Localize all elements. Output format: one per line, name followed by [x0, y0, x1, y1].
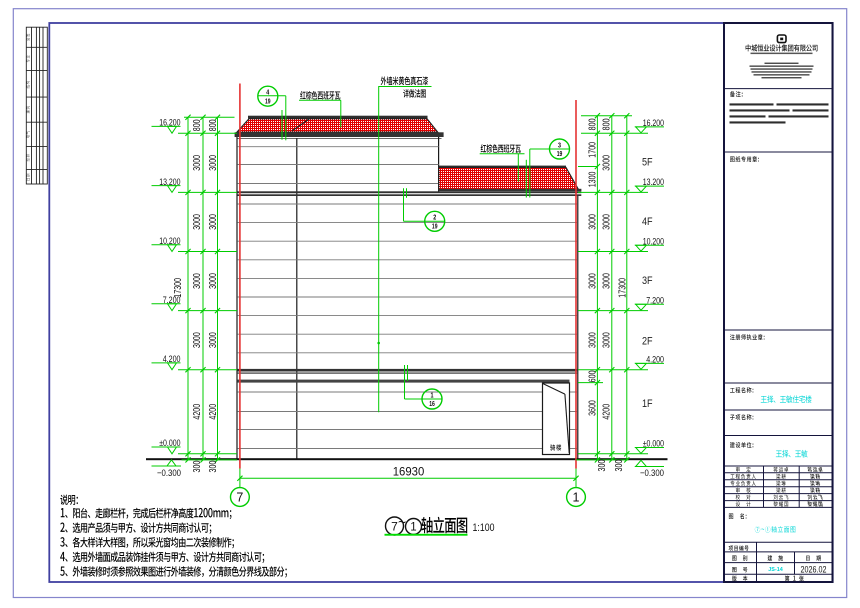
svg-text:300: 300: [614, 459, 625, 471]
svg-text:1: 1: [431, 390, 434, 399]
svg-text:300: 300: [597, 459, 608, 471]
svg-text:10.200: 10.200: [159, 236, 180, 246]
svg-text:4200: 4200: [208, 404, 219, 420]
svg-text:3000: 3000: [192, 273, 203, 289]
svg-text:800: 800: [208, 119, 219, 131]
svg-text:±0.000: ±0.000: [643, 439, 664, 449]
svg-text:1700: 1700: [588, 142, 599, 158]
svg-text:800: 800: [192, 119, 203, 131]
svg-text:2026.02: 2026.02: [801, 565, 827, 575]
svg-text:−0.300: −0.300: [157, 468, 181, 478]
svg-text:800: 800: [602, 118, 613, 130]
svg-text:4F: 4F: [642, 216, 653, 228]
svg-text:JS-14: JS-14: [768, 567, 783, 573]
svg-text:5F: 5F: [642, 157, 653, 169]
svg-text:3600: 3600: [588, 400, 599, 416]
svg-text:4.200: 4.200: [646, 355, 664, 365]
svg-text:3000: 3000: [192, 332, 203, 348]
svg-text:3000: 3000: [602, 273, 613, 289]
svg-text:3000: 3000: [602, 155, 613, 171]
svg-text:1F: 1F: [642, 398, 653, 410]
svg-text:1: 1: [573, 491, 580, 505]
svg-text:16.200: 16.200: [159, 118, 180, 128]
svg-text:4.200: 4.200: [163, 354, 181, 364]
svg-text:3000: 3000: [192, 155, 203, 171]
svg-text:3000: 3000: [602, 332, 613, 348]
svg-text:4200: 4200: [192, 404, 203, 420]
svg-text:2: 2: [433, 213, 436, 222]
svg-text:3000: 3000: [208, 214, 219, 230]
svg-text:3000: 3000: [588, 332, 599, 348]
svg-text:7.200: 7.200: [646, 295, 664, 305]
svg-text:17300: 17300: [173, 278, 184, 298]
svg-text:3000: 3000: [208, 273, 219, 289]
svg-text:300: 300: [208, 460, 219, 472]
svg-text:600: 600: [588, 370, 599, 382]
svg-text:19: 19: [557, 149, 563, 158]
svg-text:3000: 3000: [588, 273, 599, 289]
svg-text:1300: 1300: [588, 171, 599, 187]
svg-text:~: ~: [398, 514, 406, 530]
svg-text:3000: 3000: [208, 332, 219, 348]
svg-text:3: 3: [558, 140, 561, 149]
svg-text:16930: 16930: [393, 467, 425, 479]
svg-text:17300: 17300: [618, 278, 629, 298]
svg-text:1: 1: [410, 521, 416, 533]
svg-text:19: 19: [265, 96, 271, 105]
svg-text:800: 800: [588, 118, 599, 130]
svg-text:3000: 3000: [208, 155, 219, 171]
svg-text:13.200: 13.200: [159, 177, 180, 187]
svg-text:3000: 3000: [602, 214, 613, 230]
svg-text:−0.300: −0.300: [640, 468, 664, 478]
svg-text:7: 7: [236, 491, 243, 505]
svg-text:10.200: 10.200: [643, 236, 664, 246]
svg-text:2F: 2F: [642, 336, 653, 348]
svg-text:16: 16: [429, 399, 435, 408]
svg-text:4200: 4200: [602, 404, 613, 420]
svg-text:19: 19: [432, 222, 438, 231]
svg-text:3000: 3000: [192, 214, 203, 230]
svg-text:3000: 3000: [588, 214, 599, 230]
svg-text:300: 300: [192, 460, 203, 472]
svg-text:±0.000: ±0.000: [159, 438, 180, 448]
svg-text:3F: 3F: [642, 275, 653, 287]
svg-text:16.200: 16.200: [643, 118, 664, 128]
svg-text:1:100: 1:100: [473, 522, 495, 534]
svg-text:13.200: 13.200: [643, 177, 664, 187]
